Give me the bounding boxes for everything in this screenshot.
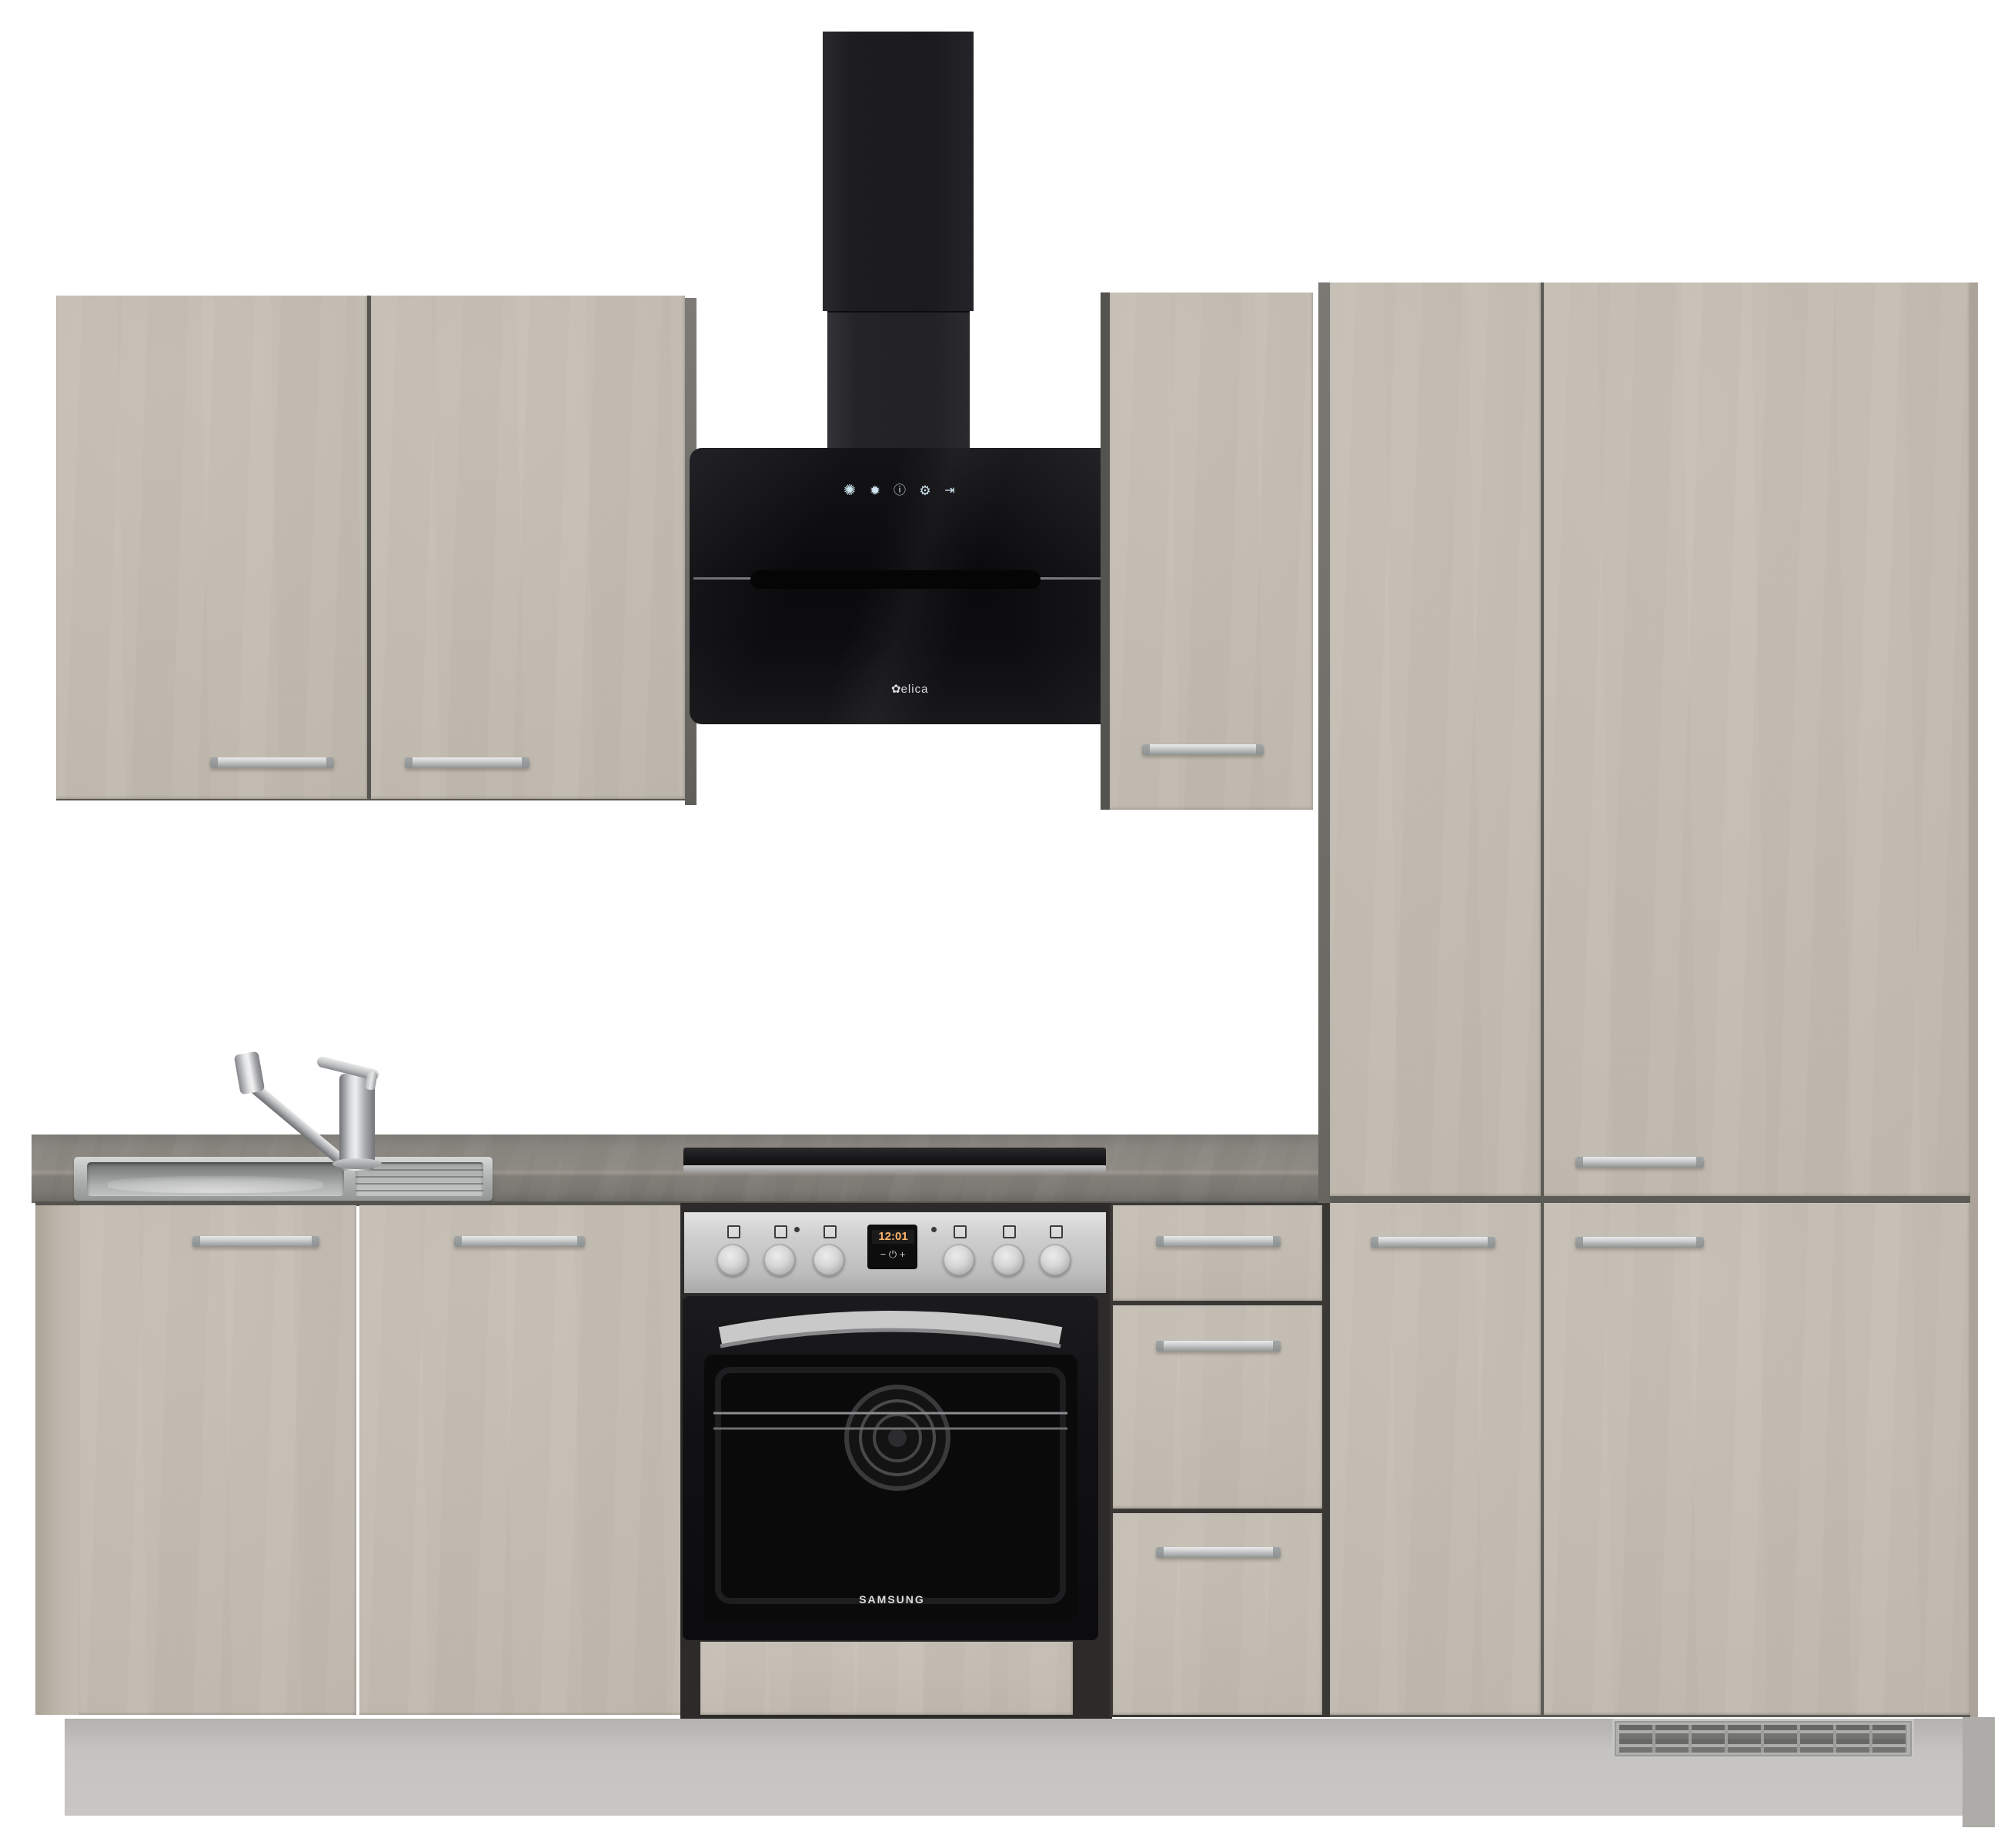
svg-text:SAMSUNG: SAMSUNG <box>859 1593 925 1606</box>
